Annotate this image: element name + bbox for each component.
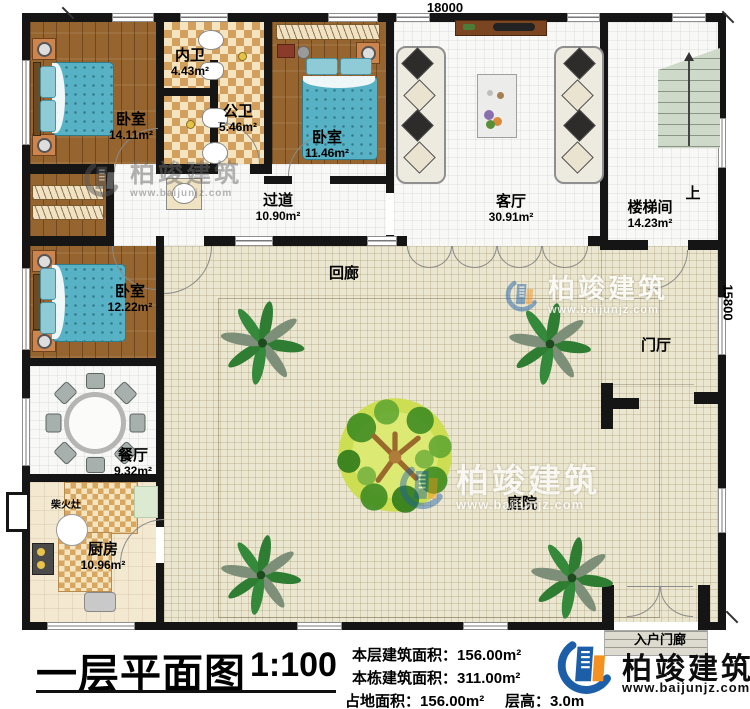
brand-logo-icon — [548, 636, 620, 702]
courtyard-tree — [332, 392, 458, 518]
dining-chair-7 — [86, 373, 105, 389]
dim-tick-bottomright — [726, 611, 739, 624]
coffee-table — [477, 74, 517, 138]
kitchen-sink — [84, 592, 116, 612]
wall-corridor-bottom-a — [204, 236, 235, 246]
plan-scale: 1:100 — [250, 646, 337, 685]
stat-building-area: 本栋建筑面积：311.00m² — [352, 667, 520, 688]
foyer-boundary-line-h — [613, 384, 694, 385]
label-foyer: 门厅 — [634, 338, 678, 355]
wall-bath-bottom-b — [250, 164, 272, 174]
bedroom1-area: 14.11m² — [109, 129, 153, 142]
tv-plant — [463, 24, 475, 30]
label-living: 客厅 30.91m² — [476, 194, 546, 224]
brand-url: www.baijunjz.com — [622, 680, 750, 695]
label-corridor: 过道 10.90m² — [240, 193, 316, 223]
bedroom2-red-pillow — [277, 44, 295, 58]
wall-foyer-right-stub — [694, 392, 718, 404]
stat-building-area-value: 311.00m² — [457, 670, 520, 687]
coffee-table-flower-3 — [486, 120, 495, 129]
dining-chair-1 — [130, 414, 146, 433]
inner-bath-name: 内卫 — [175, 48, 205, 65]
public-bath-name: 公卫 — [223, 104, 253, 121]
wall-living-left — [386, 13, 394, 193]
bedroom1-nightstand-bottom — [32, 134, 56, 156]
window-stair-top — [672, 13, 706, 22]
stat-footprint-value: 156.00m² — [420, 693, 484, 709]
stat-floor-area-label: 本层建筑面积： — [352, 647, 457, 664]
label-public-bath: 公卫 5.46m² — [204, 104, 272, 134]
cloister-name: 回廊 — [329, 266, 359, 283]
coffee-table-cup-2 — [497, 92, 504, 99]
wall-foyer-stub-arm — [613, 398, 639, 409]
corridor-area: 10.90m² — [256, 210, 301, 223]
dim-top: 18000 — [395, 0, 495, 15]
wall-foyer-stub-v — [601, 383, 613, 429]
stairs-rail — [688, 56, 690, 146]
bedroom1-pillow-1 — [40, 66, 56, 98]
window-corridor-cloister-a — [235, 236, 273, 246]
kitchen-board — [134, 486, 158, 518]
stairwell-area: 14.23m² — [628, 217, 673, 230]
corridor-vanity-sink — [172, 183, 196, 204]
label-stairs-up: 上 — [682, 186, 704, 203]
title-underline — [36, 690, 336, 693]
wall-bath-split-h — [164, 88, 210, 96]
bedroom2-name: 卧室 — [312, 130, 342, 147]
bedroom2-pillow-2 — [340, 58, 372, 75]
window-corridor-cloister-b — [367, 236, 397, 246]
label-inner-bath: 内卫 4.43m² — [158, 48, 222, 78]
living-name: 客厅 — [496, 194, 526, 211]
bedroom1-nightstand-top — [32, 38, 56, 60]
wall-bedroom2-bottom-b — [330, 176, 394, 184]
kitchen-area: 10.96m² — [81, 559, 126, 572]
wall-bath-bedroom2 — [264, 13, 272, 174]
palm-bottom-left — [215, 532, 307, 618]
range-burner-1 — [37, 548, 45, 556]
public-bath-area: 5.46m² — [219, 121, 257, 134]
wall-stair-bottom-b — [688, 240, 726, 250]
stairs-up-arrow — [684, 52, 694, 61]
foyer-boundary-line-v — [601, 250, 602, 383]
stat-floor-area-value: 156.00m² — [457, 647, 521, 664]
palm-top-left — [215, 298, 310, 388]
entry-door-line — [627, 586, 693, 587]
dining-chair-5 — [46, 414, 62, 433]
label-wood-stove: 柴火灶 — [38, 500, 94, 511]
label-kitchen: 厨房 10.96m² — [70, 542, 136, 572]
closet-wardrobe-2 — [32, 205, 104, 220]
bedroom2-wardrobe — [276, 24, 380, 40]
wall-west-court-a — [156, 236, 164, 527]
palm-bottom-right — [528, 534, 616, 622]
window-kitchen-bottom — [47, 622, 135, 630]
bath-door-knob-1 — [238, 52, 247, 61]
bedroom3-area: 12.22m² — [108, 301, 153, 314]
dining-name: 餐厅 — [118, 448, 148, 465]
palm-top-right — [502, 300, 598, 388]
wall-corridor-bottom-c — [397, 236, 407, 246]
bath-door-knob-2 — [186, 120, 195, 129]
label-cloister: 回廊 — [318, 266, 370, 283]
wall-bath-bottom-a — [156, 164, 218, 174]
label-stairwell: 楼梯间 14.23m² — [612, 200, 688, 230]
wood-stove-name: 柴火灶 — [51, 500, 81, 511]
closet-wardrobe-1 — [32, 185, 104, 200]
bedroom2-pillow-1 — [306, 58, 338, 75]
window-living-top-right — [567, 13, 600, 22]
kitchen-name: 厨房 — [88, 542, 118, 559]
window-bedroom3-left — [22, 268, 30, 350]
wall-bedroom3-dining — [22, 358, 156, 366]
bedroom2-area: 11.46m² — [305, 147, 349, 160]
stat-height-label: 层高： — [505, 693, 550, 709]
stat-building-area-label: 本栋建筑面积： — [352, 670, 457, 687]
wall-bedroom1-bottom — [22, 164, 114, 174]
foyer-name: 门厅 — [641, 338, 671, 355]
label-bedroom3: 卧室 12.22m² — [95, 284, 165, 314]
bedroom1-pillow-2 — [40, 100, 56, 132]
dining-table — [64, 392, 126, 454]
inner-bath-area: 4.43m² — [171, 65, 209, 78]
wall-stair-bottom-a — [600, 240, 648, 250]
label-dining: 餐厅 9.32m² — [100, 448, 166, 478]
bedroom1-name: 卧室 — [116, 112, 146, 129]
floor-plan-canvas: 卧室 14.11m² 内卫 4.43m² 公卫 5.46m² 卧室 11.46m… — [0, 0, 750, 709]
living-area: 30.91m² — [489, 211, 534, 224]
wall-bottom-right — [710, 622, 726, 630]
stat-footprint-label: 占地面积： — [345, 693, 420, 709]
stove-chimney — [6, 492, 30, 532]
label-bedroom1: 卧室 14.11m² — [96, 112, 166, 142]
window-bath-top — [180, 13, 228, 22]
wall-west-court-b — [156, 563, 164, 622]
wall-living-bottom-stub — [588, 236, 600, 246]
label-bedroom2: 卧室 11.46m² — [292, 130, 362, 160]
tv-set — [493, 23, 535, 31]
window-dining-left — [22, 398, 30, 466]
window-court-right — [718, 488, 726, 533]
window-court-bottom-a — [297, 622, 342, 630]
bedroom3-pillow-2 — [40, 302, 56, 334]
wall-porch-right — [698, 585, 710, 630]
wall-bedroom3-top — [22, 236, 114, 246]
wall-corridor-bottom-b — [273, 236, 367, 246]
stairs-up-text: 上 — [685, 186, 700, 203]
stairwell-name: 楼梯间 — [627, 200, 672, 217]
stat-footprint: 占地面积：156.00m² — [345, 690, 484, 709]
courtyard-name: 庭院 — [507, 496, 537, 513]
dim-right: 15800 — [721, 273, 736, 333]
dining-area: 9.32m² — [114, 465, 152, 478]
range-burner-2 — [37, 561, 45, 569]
stat-floor-area: 本层建筑面积：156.00m² — [352, 644, 521, 665]
bedroom3-pillow-1 — [40, 268, 56, 300]
label-courtyard: 庭院 — [498, 496, 546, 513]
corridor-name: 过道 — [263, 193, 293, 210]
window-court-bottom-b — [463, 622, 508, 630]
wall-bedroom2-bottom-a — [264, 176, 292, 184]
window-bedroom2-top — [328, 13, 378, 22]
bedroom3-name: 卧室 — [115, 284, 145, 301]
window-bedroom1-top — [112, 13, 154, 22]
coffee-table-cup-1 — [487, 90, 493, 96]
window-bedroom1-left — [22, 60, 30, 145]
